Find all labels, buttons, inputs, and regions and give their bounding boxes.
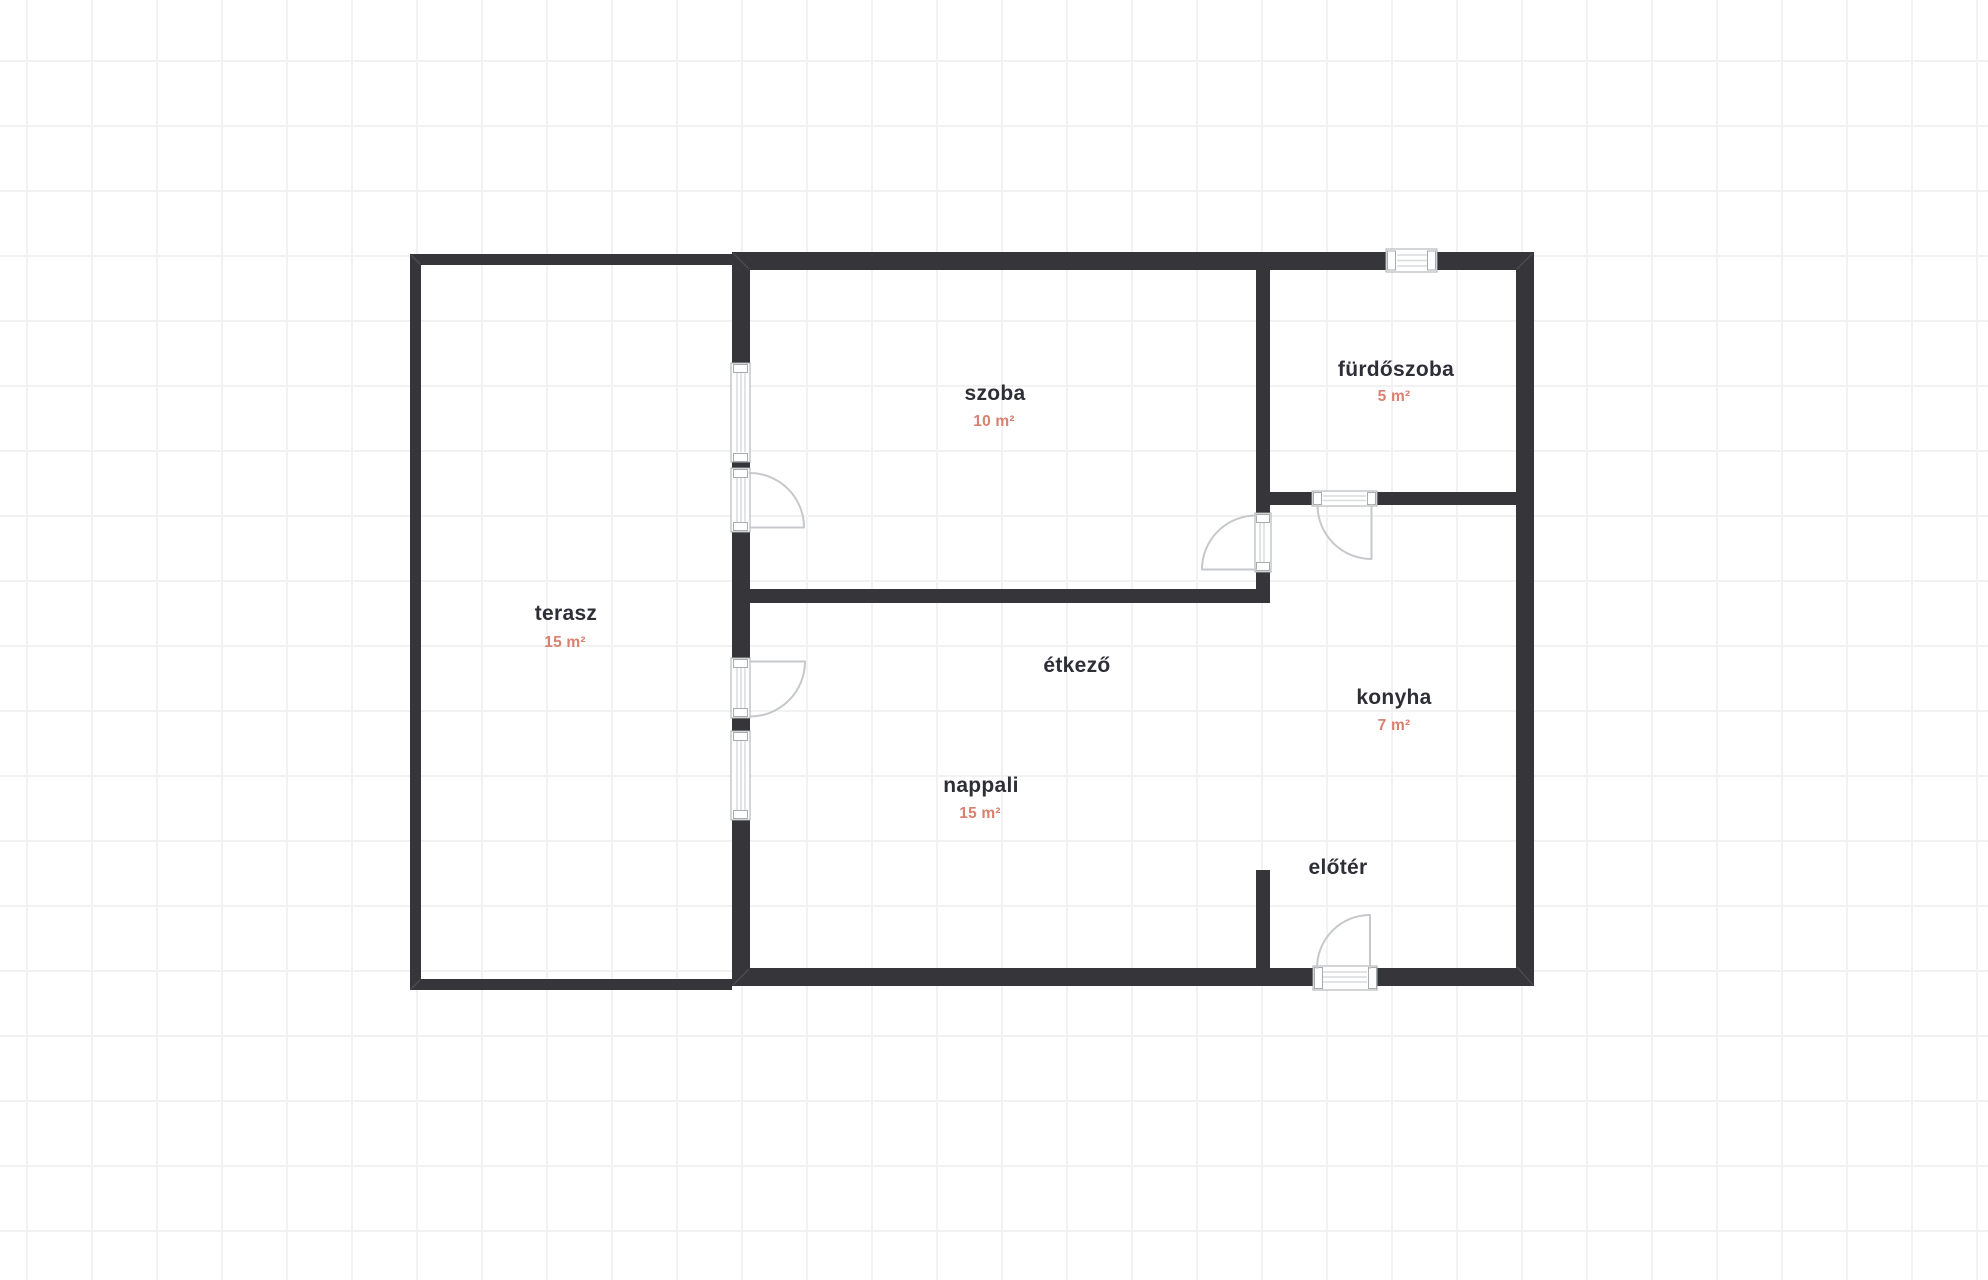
- door-end-cap: [1257, 563, 1270, 571]
- window-symbol-szoba-west[interactable]: [731, 363, 750, 462]
- window-end-cap: [734, 733, 748, 741]
- building-wall-left[interactable]: [732, 252, 750, 986]
- door-end-cap: [1369, 968, 1377, 989]
- room-area-nappali: 15 m²: [959, 805, 1001, 822]
- window-symbol-bathroom-north[interactable]: [1386, 249, 1437, 272]
- wall-bathroom-bottom[interactable]: [1270, 492, 1516, 505]
- room-area-furdoszoba: 5 m²: [1378, 388, 1411, 405]
- door-symbol-nappali-west[interactable]: [731, 658, 805, 718]
- door-end-cap: [734, 709, 748, 717]
- room-label-terasz: terasz: [535, 602, 598, 625]
- door-end-cap: [1368, 493, 1376, 505]
- room-label-etkezo: étkező: [1043, 654, 1110, 677]
- room-label-konyha: konyha: [1356, 686, 1431, 709]
- window-end-cap: [734, 454, 748, 462]
- room-label-furdoszoba: fürdőszoba: [1338, 358, 1454, 381]
- building-wall-bottom[interactable]: [732, 968, 1534, 986]
- wall-szoba-bottom[interactable]: [750, 589, 1270, 603]
- room-label-eloter: előtér: [1309, 856, 1368, 879]
- door-symbol-entry[interactable]: [1313, 915, 1377, 990]
- window-end-cap: [1428, 251, 1436, 270]
- room-label-szoba: szoba: [964, 382, 1025, 405]
- door-end-cap: [734, 660, 748, 668]
- door-swing-arc: [750, 473, 805, 528]
- door-swing-arc: [1202, 516, 1256, 570]
- terrace-wall-top[interactable]: [410, 254, 732, 265]
- window-end-cap: [734, 365, 748, 373]
- door-end-cap: [1314, 493, 1322, 505]
- window-symbol-nappali-west[interactable]: [731, 731, 750, 820]
- door-swing-arc: [750, 662, 805, 717]
- door-swing-arc: [1317, 915, 1370, 968]
- door-swing-arc: [1318, 505, 1372, 559]
- door-end-cap: [1315, 968, 1323, 989]
- room-area-szoba: 10 m²: [973, 413, 1015, 430]
- terrace-wall-bottom[interactable]: [410, 979, 732, 990]
- window-end-cap: [1388, 251, 1396, 270]
- wall-entry-hall-stub[interactable]: [1256, 870, 1270, 968]
- door-end-cap: [1257, 515, 1270, 523]
- door-end-cap: [734, 523, 748, 531]
- room-label-nappali: nappali: [943, 774, 1019, 797]
- floor-plan-canvas[interactable]: terasz 15 m² szoba 10 m² fürdőszoba 5 m²…: [0, 0, 1988, 1280]
- room-labels: terasz 15 m² szoba 10 m² fürdőszoba 5 m²…: [535, 358, 1454, 879]
- room-area-konyha: 7 m²: [1378, 717, 1411, 734]
- building-wall-right[interactable]: [1516, 252, 1534, 986]
- floor-plan-drawing: terasz 15 m² szoba 10 m² fürdőszoba 5 m²…: [0, 0, 1988, 1280]
- door-symbol-szoba-west[interactable]: [731, 468, 804, 532]
- door-symbol-szoba-east[interactable]: [1202, 513, 1271, 572]
- door-symbol-bathroom[interactable]: [1312, 491, 1377, 559]
- room-area-terasz: 15 m²: [544, 634, 586, 651]
- window-end-cap: [734, 811, 748, 819]
- terrace-wall-left[interactable]: [410, 254, 421, 990]
- door-end-cap: [734, 470, 748, 478]
